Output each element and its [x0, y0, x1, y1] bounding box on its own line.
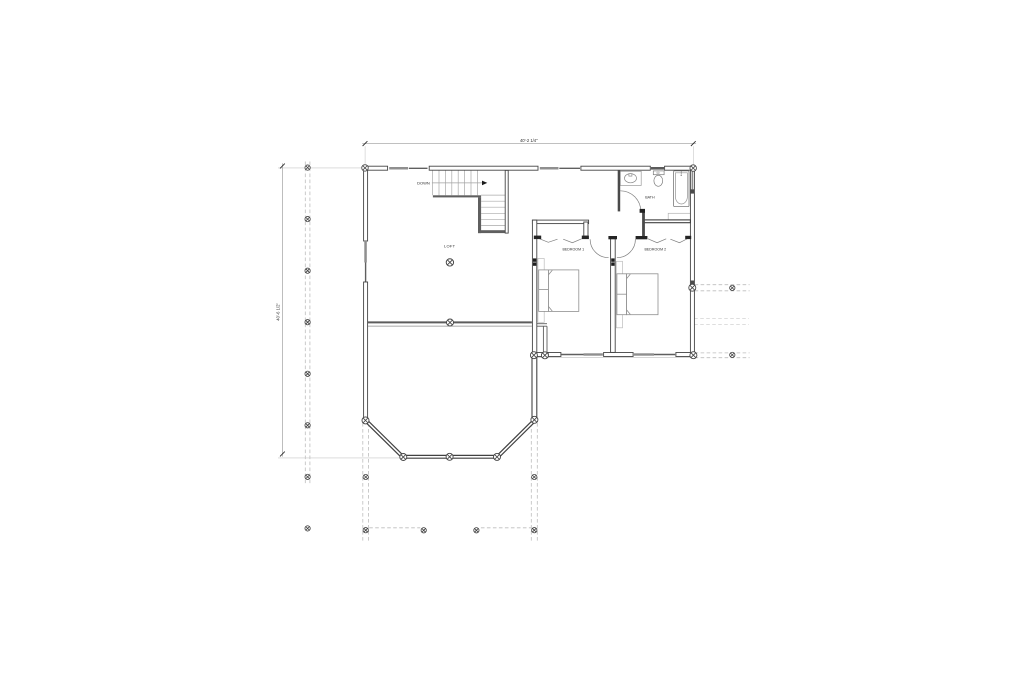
- svg-text:BEDROOM 2: BEDROOM 2: [645, 248, 667, 252]
- svg-text:DOWN: DOWN: [417, 180, 430, 185]
- svg-text:LOFT: LOFT: [444, 243, 456, 248]
- svg-text:BEDROOM 1: BEDROOM 1: [563, 248, 585, 252]
- svg-text:BATH: BATH: [645, 195, 655, 199]
- svg-text:40'-6 1/2": 40'-6 1/2": [276, 303, 281, 321]
- svg-text:40'-2 1/4": 40'-2 1/4": [520, 138, 538, 143]
